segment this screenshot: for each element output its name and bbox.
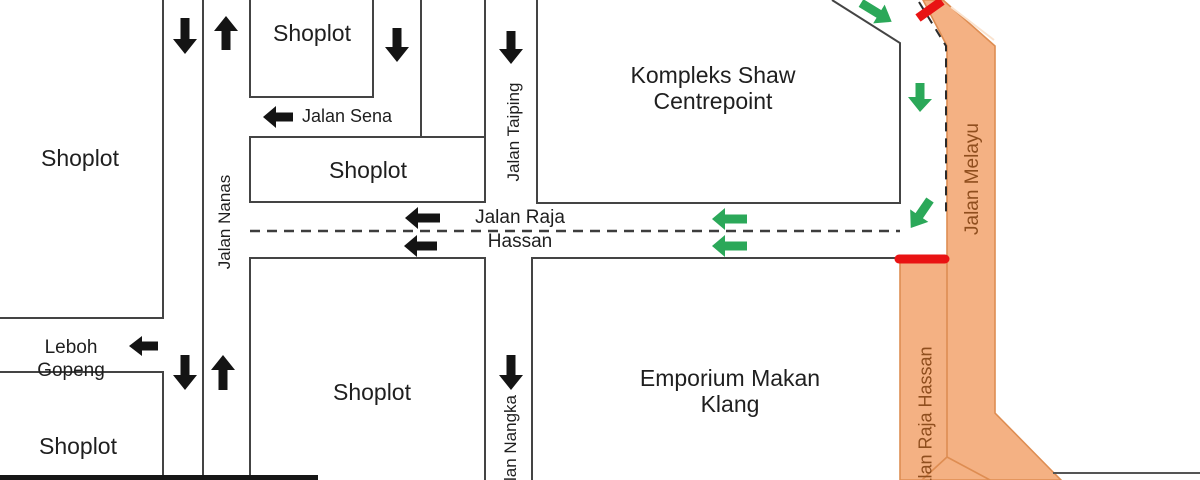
arrow-left-jalan-raja-hassan-upper (405, 207, 440, 229)
label-jalan-nangka: Jalan Nangka (501, 395, 521, 480)
label-jalan-raja-hassan-line2: Hassan (460, 230, 580, 253)
label-jalan-nanas: Jalan Nanas (215, 175, 235, 270)
block-shoplot-bottom-left (0, 372, 163, 480)
image-border-fragment (0, 475, 318, 480)
green-arrow-diagonal-top (855, 0, 897, 31)
label-jalan-sena: Jalan Sena (297, 106, 397, 127)
arrow-down-jalan-nanas-bottom (173, 355, 197, 390)
label-shoplot-top: Shoplot (252, 20, 372, 46)
label-jalan-raja-hassan-south: Jalan Raja Hassan (916, 346, 937, 480)
label-jalan-raja-hassan-line1: Jalan Raja (460, 206, 580, 229)
arrow-down-jalan-taiping (499, 31, 523, 64)
arrow-left-leboh-gopeng (129, 336, 158, 356)
arrow-up-jalan-nanas-top (214, 16, 238, 50)
green-flow-arrows (712, 0, 939, 257)
green-arrow-down-right-side (908, 83, 932, 112)
label-shoplot-bottom-left: Shoplot (18, 433, 138, 459)
label-shoplot-top-left: Shoplot (10, 145, 150, 171)
label-shoplot-bottom-mid: Shoplot (312, 379, 432, 405)
label-jalan-taiping: Jalan Taiping (504, 83, 524, 182)
green-arrow-diagonal-junction (902, 194, 939, 234)
arrow-down-jalan-nangka (499, 355, 523, 390)
arrow-left-jalan-raja-hassan-lower (404, 235, 437, 257)
label-kompleks-shaw: Kompleks Shaw Centrepoint (573, 62, 853, 114)
green-arrow-left-upper (712, 208, 747, 230)
arrow-down-jalan-nanas-top (173, 18, 197, 54)
traffic-map: Shoplot Shoplot Shoplot Shoplot Shoplot … (0, 0, 1200, 480)
arrow-up-jalan-nanas-bottom (211, 355, 235, 390)
block-shoplot-top (250, 0, 373, 97)
label-leboh-gopeng: Leboh Gopeng (11, 336, 131, 382)
label-shoplot-mid: Shoplot (308, 157, 428, 183)
block-shoplot-bottom-mid (250, 258, 485, 480)
green-arrow-left-lower (712, 235, 747, 257)
label-emporium: Emporium Makan Klang (610, 365, 850, 417)
arrow-down-top-corridor (385, 28, 409, 62)
arrow-left-jalan-sena (263, 106, 293, 128)
label-jalan-melayu: Jalan Melayu (962, 123, 984, 235)
